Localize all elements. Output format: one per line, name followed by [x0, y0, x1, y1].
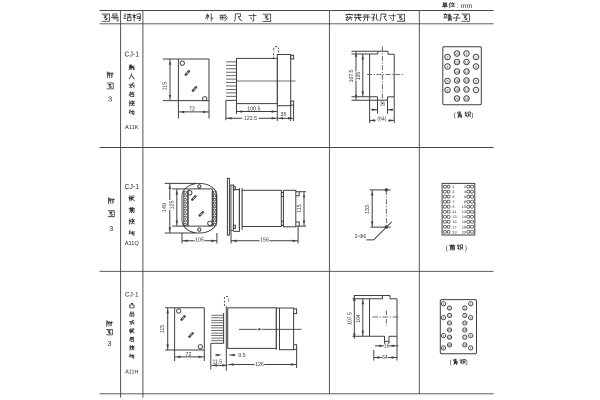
svg-text:115: 115 — [297, 204, 303, 212]
svg-text:(64): (64) — [377, 117, 386, 123]
svg-text:105: 105 — [356, 72, 362, 81]
svg-text:14: 14 — [448, 321, 452, 325]
svg-text:12: 12 — [448, 314, 452, 318]
svg-text:A11Q: A11Q — [125, 241, 140, 247]
svg-text:(: ( — [450, 359, 453, 366]
svg-text:4: 4 — [447, 65, 449, 69]
svg-text:15: 15 — [463, 328, 467, 332]
svg-text:(: ( — [453, 112, 456, 119]
svg-text:115: 115 — [160, 325, 166, 333]
svg-text:20: 20 — [448, 343, 452, 347]
svg-text:16: 16 — [380, 102, 386, 108]
svg-text:A11H: A11H — [125, 369, 138, 375]
svg-text:12: 12 — [455, 61, 459, 65]
svg-text:18: 18 — [448, 335, 452, 339]
svg-text:6: 6 — [447, 80, 449, 84]
svg-text:72: 72 — [189, 106, 195, 112]
svg-text:(: ( — [446, 245, 449, 252]
svg-text:16: 16 — [448, 328, 452, 332]
svg-text:19: 19 — [465, 97, 469, 101]
svg-text:16: 16 — [455, 79, 459, 83]
svg-text::: : — [457, 3, 459, 10]
svg-text:115: 115 — [163, 82, 169, 90]
svg-text:64: 64 — [382, 355, 388, 361]
svg-text:16: 16 — [384, 344, 390, 350]
svg-text:11: 11 — [463, 314, 466, 318]
svg-text:9: 9 — [466, 52, 468, 56]
svg-text:9.5: 9.5 — [238, 353, 245, 359]
svg-text:CJ-1: CJ-1 — [125, 51, 140, 58]
svg-text:A11K: A11K — [125, 125, 139, 131]
svg-text:11: 11 — [465, 61, 469, 65]
svg-text:3: 3 — [108, 94, 112, 103]
svg-text:CJ-1: CJ-1 — [125, 184, 140, 191]
svg-text:2-Φ6: 2-Φ6 — [355, 234, 367, 240]
svg-text:19: 19 — [463, 343, 467, 347]
svg-text:2: 2 — [447, 56, 449, 60]
svg-text:20: 20 — [455, 97, 459, 101]
svg-text:5: 5 — [475, 80, 477, 84]
svg-text:104: 104 — [356, 314, 362, 323]
svg-text:100.5: 100.5 — [247, 106, 260, 112]
svg-text:13: 13 — [465, 70, 469, 74]
svg-text:): ) — [471, 112, 473, 119]
svg-text:149: 149 — [162, 203, 168, 212]
svg-text:133: 133 — [365, 205, 371, 214]
svg-text:35: 35 — [281, 112, 287, 118]
svg-text:126: 126 — [255, 362, 264, 368]
svg-text:mm: mm — [461, 3, 473, 10]
svg-text:107.5: 107.5 — [349, 69, 355, 82]
svg-text:15: 15 — [465, 79, 469, 83]
svg-text:8: 8 — [447, 89, 449, 93]
svg-text:17: 17 — [463, 335, 467, 339]
svg-text:3: 3 — [107, 341, 111, 348]
svg-text:105: 105 — [195, 238, 204, 244]
svg-text:): ) — [465, 245, 467, 252]
svg-text:156: 156 — [260, 238, 269, 244]
svg-text:17: 17 — [465, 88, 469, 92]
svg-text:122.5: 122.5 — [244, 116, 257, 122]
svg-text:13: 13 — [463, 321, 467, 325]
svg-text:19: 19 — [452, 229, 457, 234]
svg-text:CJ-1: CJ-1 — [125, 292, 139, 299]
svg-text:7: 7 — [475, 89, 477, 93]
svg-text:20: 20 — [462, 229, 467, 234]
svg-text:125: 125 — [169, 201, 175, 210]
svg-text:3: 3 — [475, 65, 477, 69]
svg-text:107.5: 107.5 — [347, 312, 353, 325]
svg-text:72: 72 — [186, 352, 192, 358]
svg-text:3: 3 — [109, 224, 113, 233]
svg-text:10: 10 — [455, 52, 459, 56]
svg-text:11.5: 11.5 — [212, 359, 222, 365]
svg-text:1: 1 — [475, 56, 477, 60]
svg-text:10: 10 — [448, 306, 452, 310]
svg-text:14: 14 — [455, 70, 459, 74]
svg-text:): ) — [466, 359, 468, 366]
svg-text:18: 18 — [455, 88, 459, 92]
